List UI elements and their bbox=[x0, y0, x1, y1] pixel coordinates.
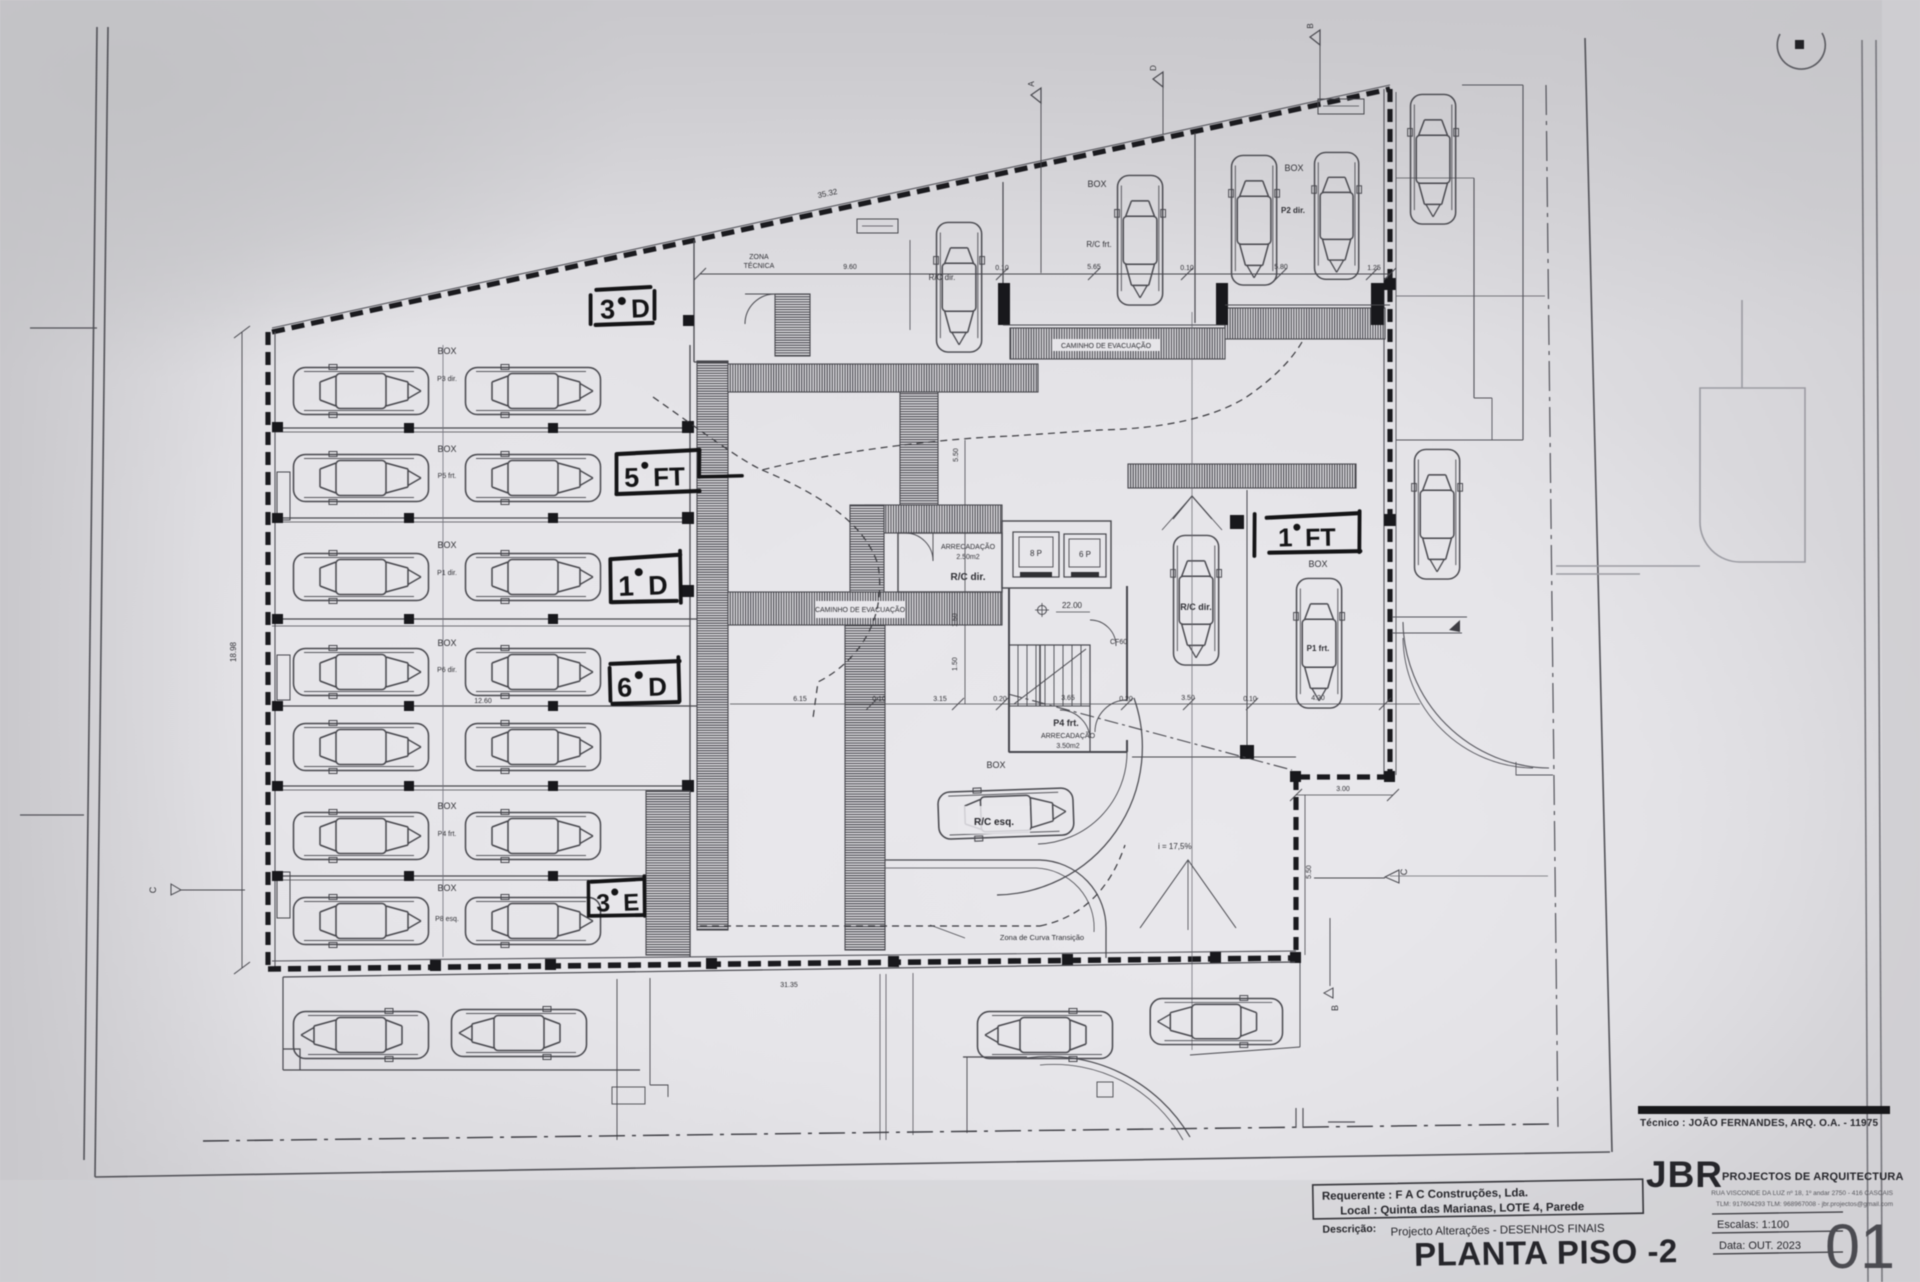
svg-text:P1 frt.: P1 frt. bbox=[1307, 644, 1330, 653]
svg-text:5.65: 5.65 bbox=[1087, 264, 1101, 271]
svg-text:D: D bbox=[631, 293, 651, 324]
svg-text:R/C dir.: R/C dir. bbox=[929, 273, 956, 282]
svg-text:0.10: 0.10 bbox=[1243, 696, 1257, 703]
svg-text:C: C bbox=[1399, 868, 1409, 875]
svg-text:BOX: BOX bbox=[1308, 559, 1327, 569]
svg-text:Data: OUT. 2023: Data: OUT. 2023 bbox=[1719, 1240, 1801, 1252]
svg-text:C: C bbox=[148, 886, 158, 893]
svg-text:12.60: 12.60 bbox=[474, 698, 492, 705]
svg-text:1: 1 bbox=[618, 570, 635, 602]
svg-text:ARRECADAÇÃO: ARRECADAÇÃO bbox=[941, 542, 996, 551]
svg-text:0.10: 0.10 bbox=[872, 696, 886, 703]
svg-text:B: B bbox=[1306, 23, 1315, 28]
svg-text:5: 5 bbox=[624, 462, 640, 492]
svg-text:P2 dir.: P2 dir. bbox=[1281, 206, 1305, 215]
svg-text:ZONA: ZONA bbox=[749, 254, 769, 261]
svg-text:D: D bbox=[1149, 65, 1158, 71]
svg-text:31.35: 31.35 bbox=[780, 982, 798, 989]
svg-text:R/C frt.: R/C frt. bbox=[1086, 240, 1111, 249]
svg-text:3.15: 3.15 bbox=[933, 696, 947, 703]
svg-text:BOX: BOX bbox=[986, 760, 1005, 770]
svg-text:3: 3 bbox=[600, 294, 616, 325]
svg-text:RUA VISCONDE DA LUZ nº 18, 1º: RUA VISCONDE DA LUZ nº 18, 1º andar 2750… bbox=[1711, 1190, 1893, 1197]
svg-text:22.00: 22.00 bbox=[1062, 601, 1083, 610]
svg-text:8 P: 8 P bbox=[1030, 549, 1042, 558]
svg-text:Técnico : JOÃO FERNANDES, ARQ.: Técnico : JOÃO FERNANDES, ARQ. O.A. - 11… bbox=[1640, 1116, 1879, 1129]
svg-text:P6 dir.: P6 dir. bbox=[437, 667, 457, 674]
svg-text:6 P: 6 P bbox=[1079, 550, 1091, 559]
svg-text:R/C esq.: R/C esq. bbox=[974, 817, 1014, 828]
svg-text:BOX: BOX bbox=[1284, 163, 1303, 173]
svg-text:JBR: JBR bbox=[1646, 1154, 1723, 1195]
svg-text:9.60: 9.60 bbox=[843, 264, 857, 271]
svg-text:0.20: 0.20 bbox=[993, 696, 1007, 703]
svg-text:R/C dir.: R/C dir. bbox=[950, 572, 985, 583]
svg-text:FT: FT bbox=[1305, 524, 1336, 553]
svg-text:P3 dir.: P3 dir. bbox=[437, 376, 457, 383]
svg-text:BOX: BOX bbox=[1087, 179, 1106, 189]
svg-text:Zona de Curva Transição: Zona de Curva Transição bbox=[1000, 933, 1084, 942]
svg-text:5.50: 5.50 bbox=[1306, 865, 1313, 879]
svg-text:BOX: BOX bbox=[437, 444, 456, 454]
svg-text:3.50: 3.50 bbox=[1181, 695, 1195, 702]
svg-text:2.50m2: 2.50m2 bbox=[956, 554, 979, 561]
svg-text:1.25: 1.25 bbox=[1367, 265, 1381, 272]
svg-text:CAMINHO DE EVACUAÇÃO: CAMINHO DE EVACUAÇÃO bbox=[1061, 341, 1152, 350]
svg-text:TÉCNICA: TÉCNICA bbox=[744, 261, 775, 270]
svg-text:i = 17,5%: i = 17,5% bbox=[1158, 842, 1192, 851]
svg-text:3: 3 bbox=[596, 889, 611, 917]
svg-text:0.10: 0.10 bbox=[995, 265, 1009, 272]
svg-text:P1 dir.: P1 dir. bbox=[437, 570, 457, 577]
svg-text:P4 frt.: P4 frt. bbox=[1053, 718, 1079, 728]
svg-text:BOX: BOX bbox=[437, 540, 456, 550]
svg-text:Escalas: 1:100: Escalas: 1:100 bbox=[1717, 1219, 1789, 1231]
svg-text:P5 frt.: P5 frt. bbox=[438, 473, 457, 480]
svg-text:FT: FT bbox=[653, 461, 686, 492]
svg-text:E: E bbox=[623, 889, 640, 917]
svg-text:BOX: BOX bbox=[437, 346, 456, 356]
svg-text:BOX: BOX bbox=[437, 883, 456, 893]
svg-text:D: D bbox=[648, 671, 668, 701]
svg-text:ARRECADAÇÃO: ARRECADAÇÃO bbox=[1041, 731, 1096, 740]
svg-text:01: 01 bbox=[1825, 1212, 1895, 1282]
svg-text:P4 frt.: P4 frt. bbox=[438, 831, 457, 838]
svg-text:PROJECTOS DE ARQUITECTURA: PROJECTOS DE ARQUITECTURA bbox=[1722, 1171, 1904, 1183]
svg-text:3.65: 3.65 bbox=[1061, 695, 1075, 702]
svg-text:3.50m2: 3.50m2 bbox=[1056, 743, 1079, 750]
svg-text:1: 1 bbox=[1278, 522, 1293, 552]
svg-text:D: D bbox=[648, 570, 669, 601]
svg-text:0.20: 0.20 bbox=[1119, 696, 1133, 703]
svg-text:BOX: BOX bbox=[437, 638, 456, 648]
svg-text:TLM: 917604293 TLM: 968967008: TLM: 917604293 TLM: 968967008 - jbr.proj… bbox=[1716, 1201, 1893, 1208]
svg-text:6.15: 6.15 bbox=[793, 696, 807, 703]
svg-text:5.50: 5.50 bbox=[953, 448, 960, 462]
svg-text:B: B bbox=[1330, 1005, 1340, 1011]
svg-text:R/C dir.: R/C dir. bbox=[1180, 602, 1212, 612]
svg-text:1.50: 1.50 bbox=[952, 613, 959, 627]
svg-text:BOX: BOX bbox=[437, 801, 456, 811]
svg-text:P8 esq.: P8 esq. bbox=[435, 916, 459, 923]
svg-text:CF60: CF60 bbox=[1110, 639, 1127, 646]
svg-text:6: 6 bbox=[617, 672, 633, 702]
svg-text:3.00: 3.00 bbox=[1336, 786, 1350, 793]
svg-text:Descrição:: Descrição: bbox=[1322, 1223, 1376, 1236]
svg-text:1.50: 1.50 bbox=[952, 657, 959, 671]
svg-text:18.98: 18.98 bbox=[229, 641, 238, 662]
svg-text:PLANTA PISO -2: PLANTA PISO -2 bbox=[1414, 1232, 1678, 1273]
svg-text:CAMINHO DE EVACUAÇÃO: CAMINHO DE EVACUAÇÃO bbox=[815, 605, 906, 614]
svg-text:0.10: 0.10 bbox=[1180, 265, 1194, 272]
svg-text:A: A bbox=[1027, 81, 1036, 87]
